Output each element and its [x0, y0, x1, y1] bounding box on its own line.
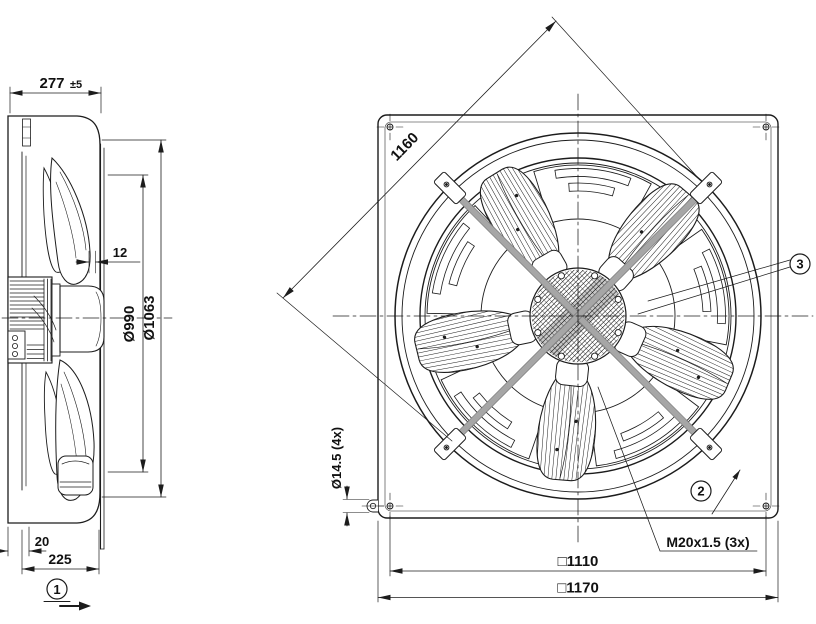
front-view: 1160 Ø14.5 (4x) □1110 □1170 M20x1.5 (3x)… — [277, 17, 813, 602]
dim-plate-width: □1170 — [557, 580, 599, 597]
callout-2: 2 — [697, 484, 704, 499]
dim-impeller-dia: Ø990 — [121, 306, 138, 343]
callout-3: 3 — [796, 257, 803, 272]
view-callout-1: 1 — [53, 582, 60, 597]
dim-tip-gap: 12 — [113, 245, 127, 260]
blade-tip-end — [58, 456, 93, 495]
side-view: 277 ±5 12 Ø990 Ø1063 20 225 1 — [0, 75, 172, 611]
motor-flange — [52, 284, 60, 356]
dim-hole-pitch: □1110 — [558, 553, 599, 570]
dim-width-tol: ±5 — [70, 79, 82, 91]
dim-motor-offset: 20 — [35, 534, 49, 549]
dim-mounting-hole: Ø14.5 (4x) — [329, 427, 344, 489]
fan-technical-drawing: 277 ±5 12 Ø990 Ø1063 20 225 1 — [0, 0, 816, 624]
dim-depth: 225 — [48, 551, 72, 567]
dim-ring-dia: Ø1063 — [141, 295, 158, 340]
dim-width: 277 — [39, 75, 64, 92]
cable-gland-label: M20x1.5 (3x) — [666, 534, 749, 550]
